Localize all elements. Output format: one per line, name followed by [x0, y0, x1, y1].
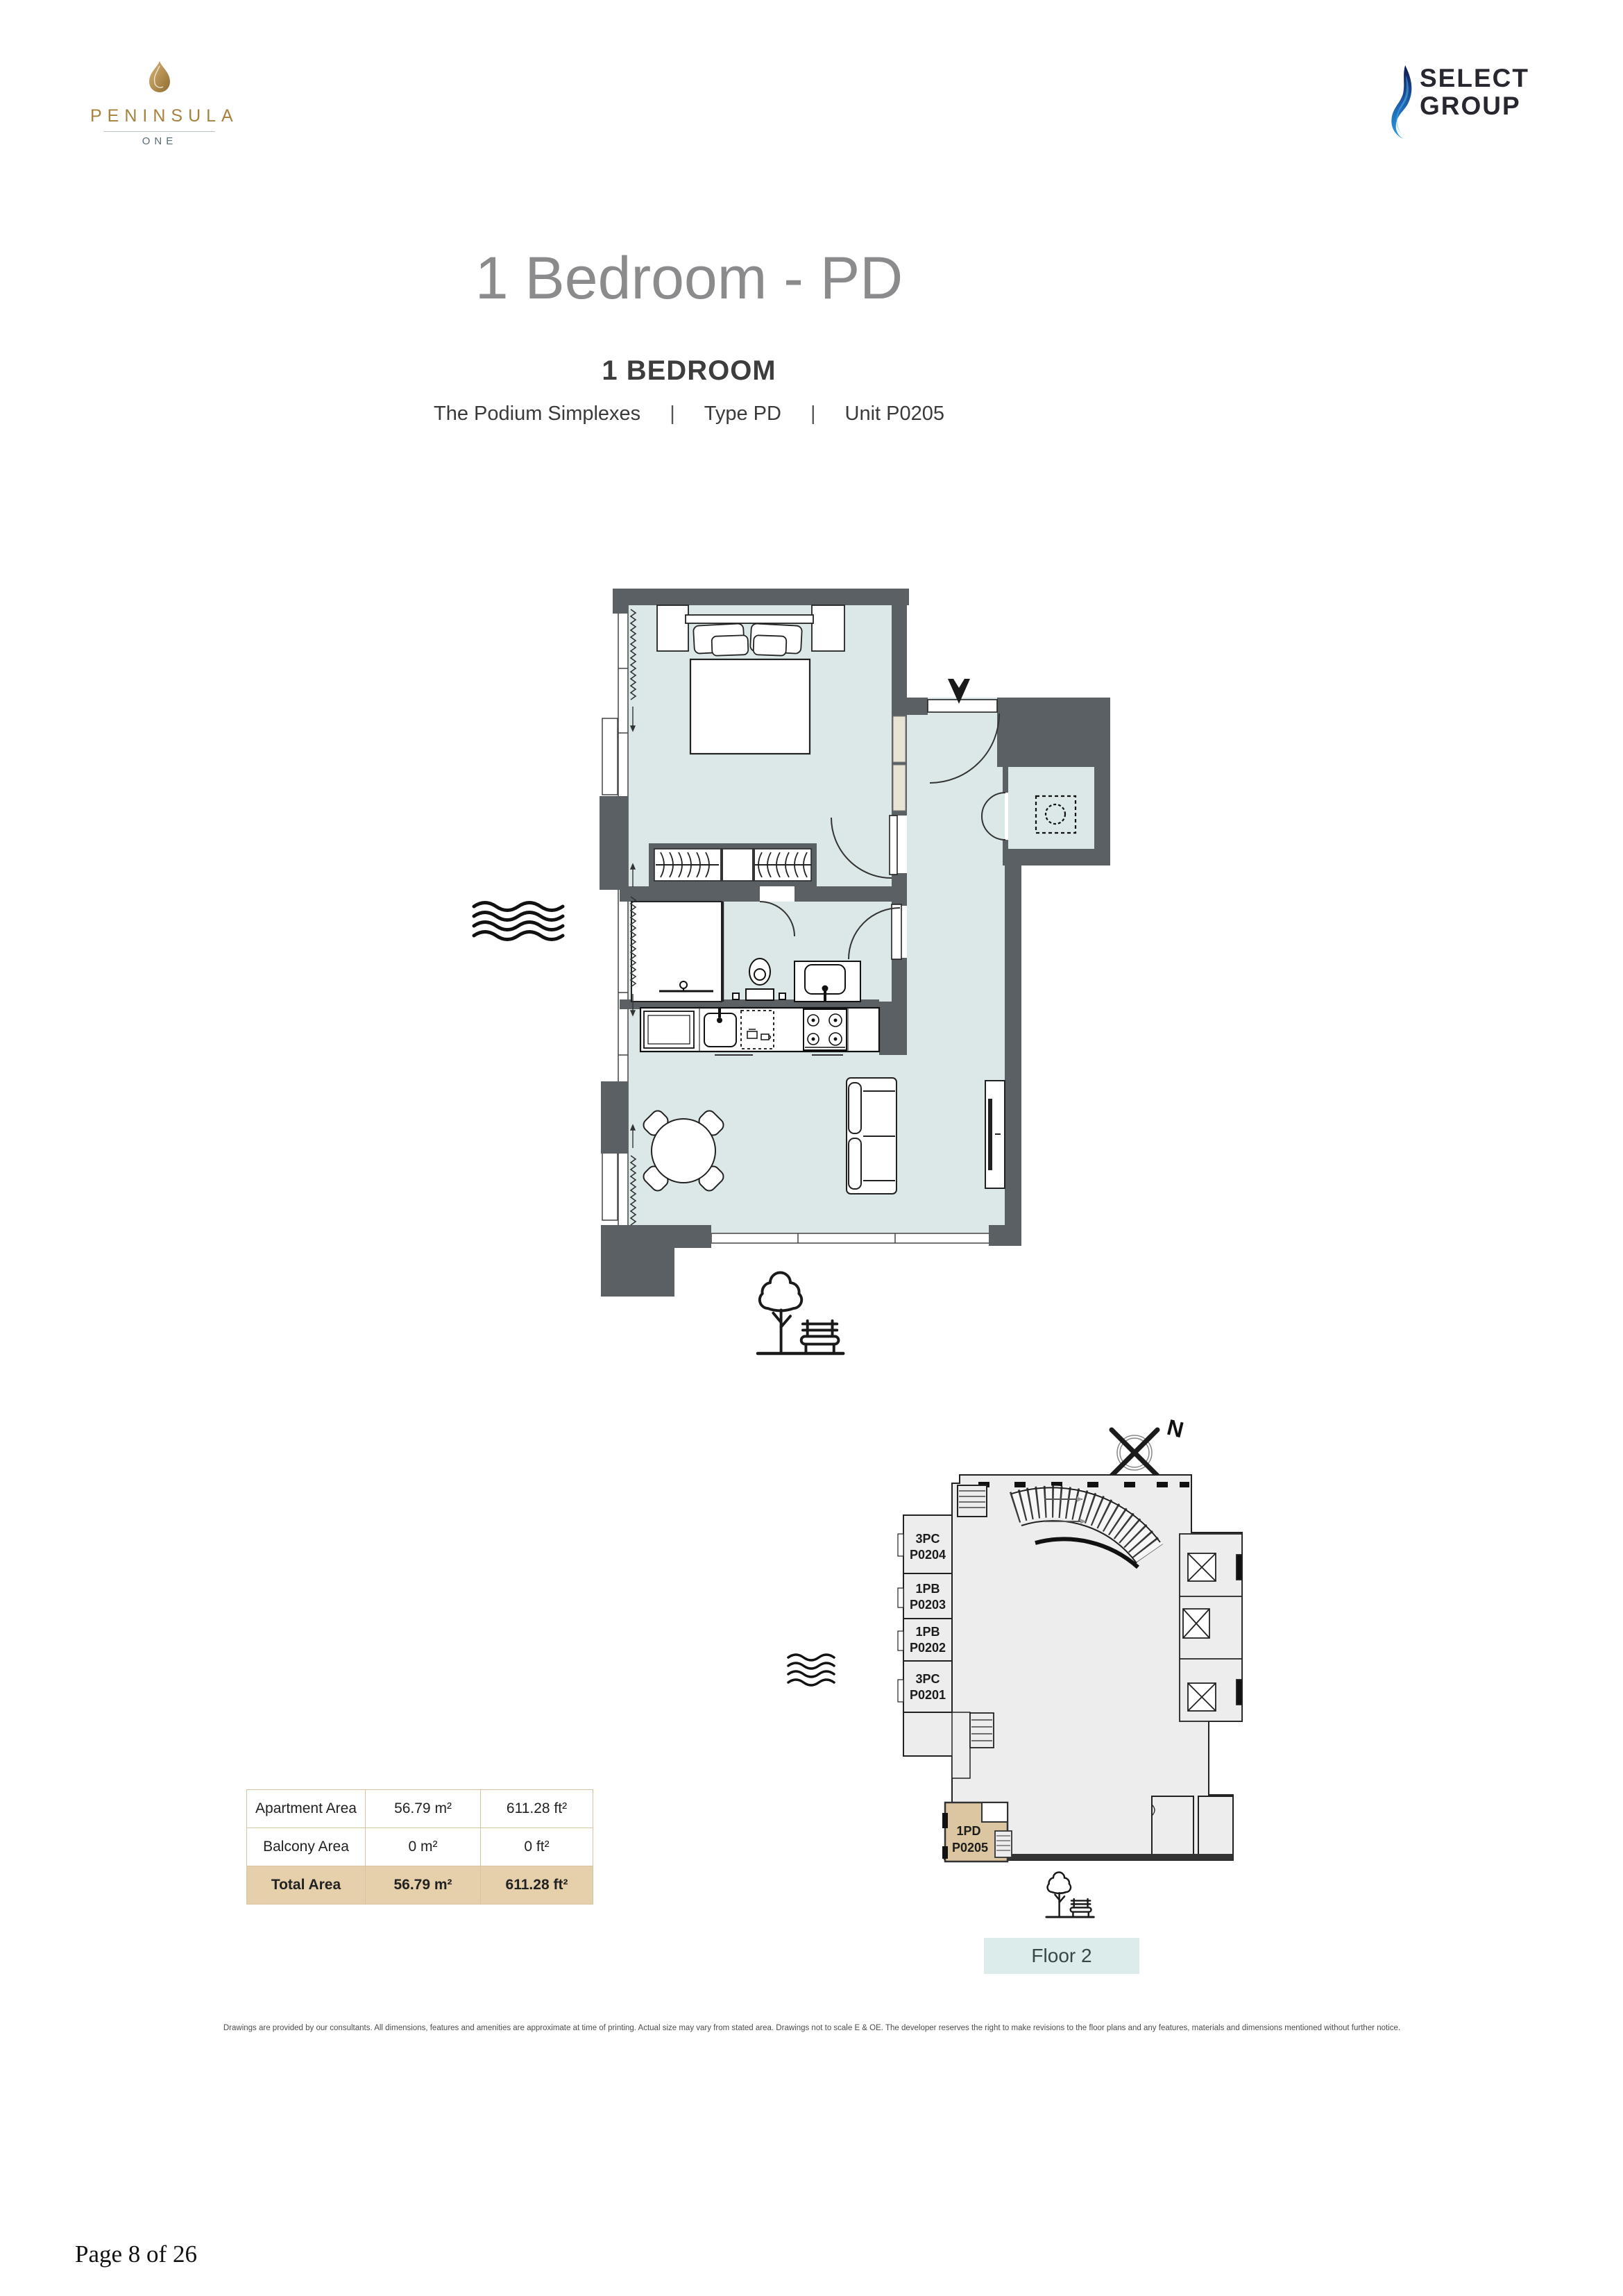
select-line2: GROUP	[1420, 93, 1529, 119]
brand-name: PENINSULA	[90, 106, 229, 126]
floor-badge: Floor 2	[984, 1938, 1139, 1974]
bedroom-door-leaf	[890, 816, 897, 875]
svg-text:1PD: 1PD	[956, 1824, 980, 1838]
table-row: Apartment Area 56.79 m² 611.28 ft²	[247, 1790, 593, 1827]
area-table: Apartment Area 56.79 m² 611.28 ft² Balco…	[246, 1789, 593, 1905]
area-ft2: 611.28 ft²	[480, 1790, 593, 1827]
kitchen-sink	[704, 1008, 736, 1047]
vanity-sink	[794, 961, 860, 1002]
collection-name: The Podium Simplexes	[434, 403, 640, 425]
area-m2: 56.79 m²	[365, 1866, 480, 1904]
svg-text:1PB: 1PB	[915, 1625, 940, 1639]
floor-plan-drawing	[458, 569, 1124, 1388]
unit-number-label: Unit P0205	[845, 403, 945, 425]
area-ft2: 0 ft²	[480, 1828, 593, 1866]
svg-text:3PC: 3PC	[915, 1532, 940, 1546]
separator: |	[810, 403, 816, 425]
area-label: Balcony Area	[247, 1828, 365, 1866]
area-m2: 56.79 m²	[365, 1790, 480, 1827]
shower	[631, 902, 722, 1002]
separator: |	[670, 403, 675, 425]
area-m2: 0 m²	[365, 1828, 480, 1866]
disclaimer-text: Drawings are provided by our consultants…	[223, 2024, 1400, 2032]
table-row-total: Total Area 56.79 m² 611.28 ft²	[247, 1866, 593, 1904]
north-label: N	[1164, 1415, 1186, 1443]
gold-droplet-icon	[147, 61, 172, 99]
area-label: Apartment Area	[247, 1790, 365, 1827]
blue-flame-icon	[1391, 65, 1416, 139]
entry-door-leaf	[928, 700, 997, 712]
water-waves-icon	[474, 903, 563, 940]
tree-bench-icon	[758, 1273, 843, 1353]
select-line1: SELECT	[1420, 65, 1529, 91]
select-group-logo: SELECT GROUP	[1391, 65, 1529, 139]
area-label: Total Area	[247, 1866, 365, 1904]
unit-heading: 1 BEDROOM	[602, 355, 776, 387]
kitchen-counter	[640, 1008, 879, 1055]
type-label: Type PD	[704, 403, 781, 425]
water-waves-small-icon	[788, 1655, 834, 1685]
svg-text:P0205: P0205	[952, 1841, 988, 1855]
sofa	[847, 1078, 897, 1194]
elevator-core	[1180, 1534, 1242, 1721]
tv-console	[985, 1081, 1005, 1188]
floor-locator-plan: N	[763, 1402, 1402, 1930]
svg-text:P0201: P0201	[910, 1688, 946, 1702]
svg-text:3PC: 3PC	[915, 1672, 940, 1686]
peninsula-one-logo: PENINSULA ONE	[90, 61, 229, 147]
svg-text:1PB: 1PB	[915, 1582, 940, 1596]
brand-divider	[104, 131, 215, 132]
table-row: Balcony Area 0 m² 0 ft²	[247, 1827, 593, 1866]
brand-subname: ONE	[90, 135, 229, 147]
area-ft2: 611.28 ft²	[480, 1866, 593, 1904]
svg-text:P0204: P0204	[910, 1548, 946, 1562]
svg-text:P0203: P0203	[910, 1598, 946, 1612]
stair-room	[958, 1485, 987, 1517]
brochure-page: PENINSULA ONE SELECT GROUP 1 Bedroom - P…	[0, 0, 1623, 2296]
page-number: Page 8 of 26	[75, 2240, 197, 2268]
unit-meta-line: The Podium Simplexes | Type PD | Unit P0…	[434, 403, 944, 425]
svg-text:P0202: P0202	[910, 1641, 946, 1655]
bathroom-door-leaf	[892, 904, 901, 959]
north-compass-icon: N	[1112, 1415, 1186, 1476]
fridge	[644, 1011, 694, 1048]
wardrobe	[654, 849, 811, 881]
page-title: 1 Bedroom - PD	[475, 244, 903, 313]
dining-set	[641, 1108, 726, 1193]
tree-bench-small-icon	[1046, 1873, 1094, 1917]
lower-right-rooms	[1152, 1796, 1233, 1855]
